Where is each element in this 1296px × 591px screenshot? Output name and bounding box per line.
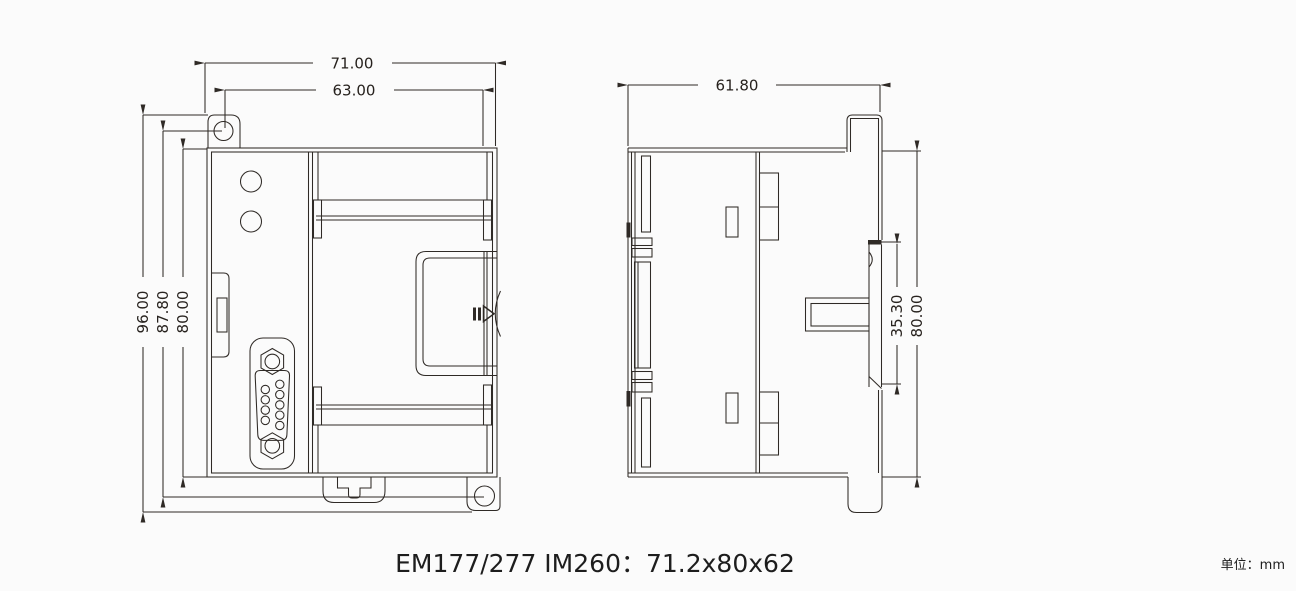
side-detail-lower	[726, 393, 738, 423]
din-rail-plate	[869, 245, 882, 389]
bus-connector-lower	[760, 392, 779, 455]
dim-overall-depth-label: 61.80	[716, 77, 759, 95]
unit-note: 单位：mm	[1221, 558, 1285, 573]
mounting-lug-bottom	[467, 477, 500, 511]
side-dim-lines	[628, 85, 921, 477]
door-open-arrow-icon	[473, 306, 494, 322]
front-view	[207, 115, 501, 511]
side-port-cover	[212, 273, 230, 357]
db9-connector	[250, 338, 295, 469]
front-dim-lines	[143, 63, 496, 512]
dim-hole-pitch-label: 87.80	[154, 291, 172, 334]
front-panel-divider	[309, 152, 313, 473]
dim-overall-height-label: 96.00	[134, 291, 152, 334]
db9-screw-bottom	[261, 433, 284, 459]
db9-pins	[261, 380, 284, 430]
top-rail-tab	[847, 115, 882, 152]
side-right-edge-upper	[879, 152, 883, 240]
dim-inner-width-label: 63.00	[333, 82, 376, 100]
mounting-hole-bottom	[475, 486, 495, 506]
side-detail-upper	[726, 207, 738, 237]
side-view	[627, 115, 883, 513]
bus-connector-upper	[760, 173, 779, 240]
front-hole-lower	[241, 211, 262, 232]
dim-latch-height-label: 35.30	[888, 295, 906, 338]
front-bezel-profile	[627, 152, 653, 473]
front-view-dimensions: 71.00 63.00 96.00 87.80 80.00	[134, 55, 496, 513]
dim-side-body-height-label: 80.00	[908, 295, 926, 338]
terminal-channel-top	[314, 152, 492, 240]
dim-body-height-label: 80.00	[174, 291, 192, 334]
access-door	[416, 252, 501, 376]
front-hole-upper	[241, 171, 262, 192]
top-rail-tab-inner	[851, 119, 879, 153]
rail-release-latch	[806, 298, 870, 331]
terminal-channel-bottom	[314, 385, 492, 473]
dim-overall-width-label: 71.00	[331, 55, 374, 73]
bottom-rail-tab	[848, 477, 882, 513]
side-port-slot	[217, 298, 227, 332]
rail-groove-mark	[868, 240, 882, 245]
door-finger-groove	[495, 291, 500, 337]
side-divider	[756, 152, 760, 473]
side-body-outline	[628, 148, 848, 477]
drawing-canvas: 71.00 63.00 96.00 87.80 80.00	[0, 0, 1296, 591]
drawing-caption: EM177/277 IM260：71.2x80x62	[395, 549, 795, 578]
side-right-edge-lower	[879, 390, 883, 477]
din-rail-latch	[323, 477, 385, 503]
technical-drawing-page: 71.00 63.00 96.00 87.80 80.00	[0, 0, 1296, 591]
